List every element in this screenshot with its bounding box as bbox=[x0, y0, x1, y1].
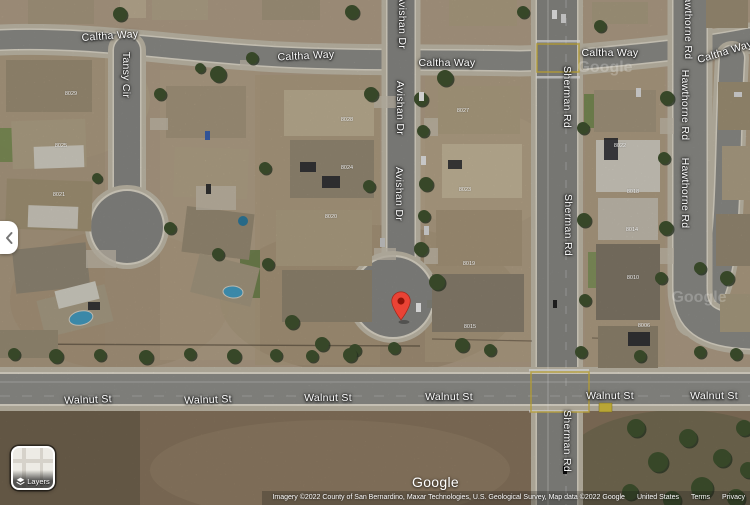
google-maps-satellite-view: Caltha WayCaltha WayCaltha WayCaltha Way… bbox=[0, 0, 750, 505]
google-logo[interactable]: Google bbox=[412, 474, 459, 490]
map-pin-icon[interactable] bbox=[390, 291, 412, 321]
layers-diamond-icon bbox=[16, 477, 25, 486]
attribution-bar: Imagery ©2022 County of San Bernardino, … bbox=[262, 491, 750, 505]
privacy-link[interactable]: Privacy bbox=[722, 494, 745, 501]
imagery-attribution-text: Imagery ©2022 County of San Bernardino, … bbox=[272, 494, 624, 501]
collapse-side-panel-button[interactable] bbox=[0, 221, 18, 254]
region-link[interactable]: United States bbox=[637, 494, 679, 501]
layers-button-strip: Layers bbox=[13, 470, 53, 488]
satellite-imagery[interactable] bbox=[0, 0, 750, 505]
terms-link[interactable]: Terms bbox=[691, 494, 710, 501]
layers-button-label: Layers bbox=[27, 477, 50, 486]
chevron-left-icon bbox=[3, 230, 15, 246]
layers-button[interactable]: Layers bbox=[11, 446, 55, 490]
